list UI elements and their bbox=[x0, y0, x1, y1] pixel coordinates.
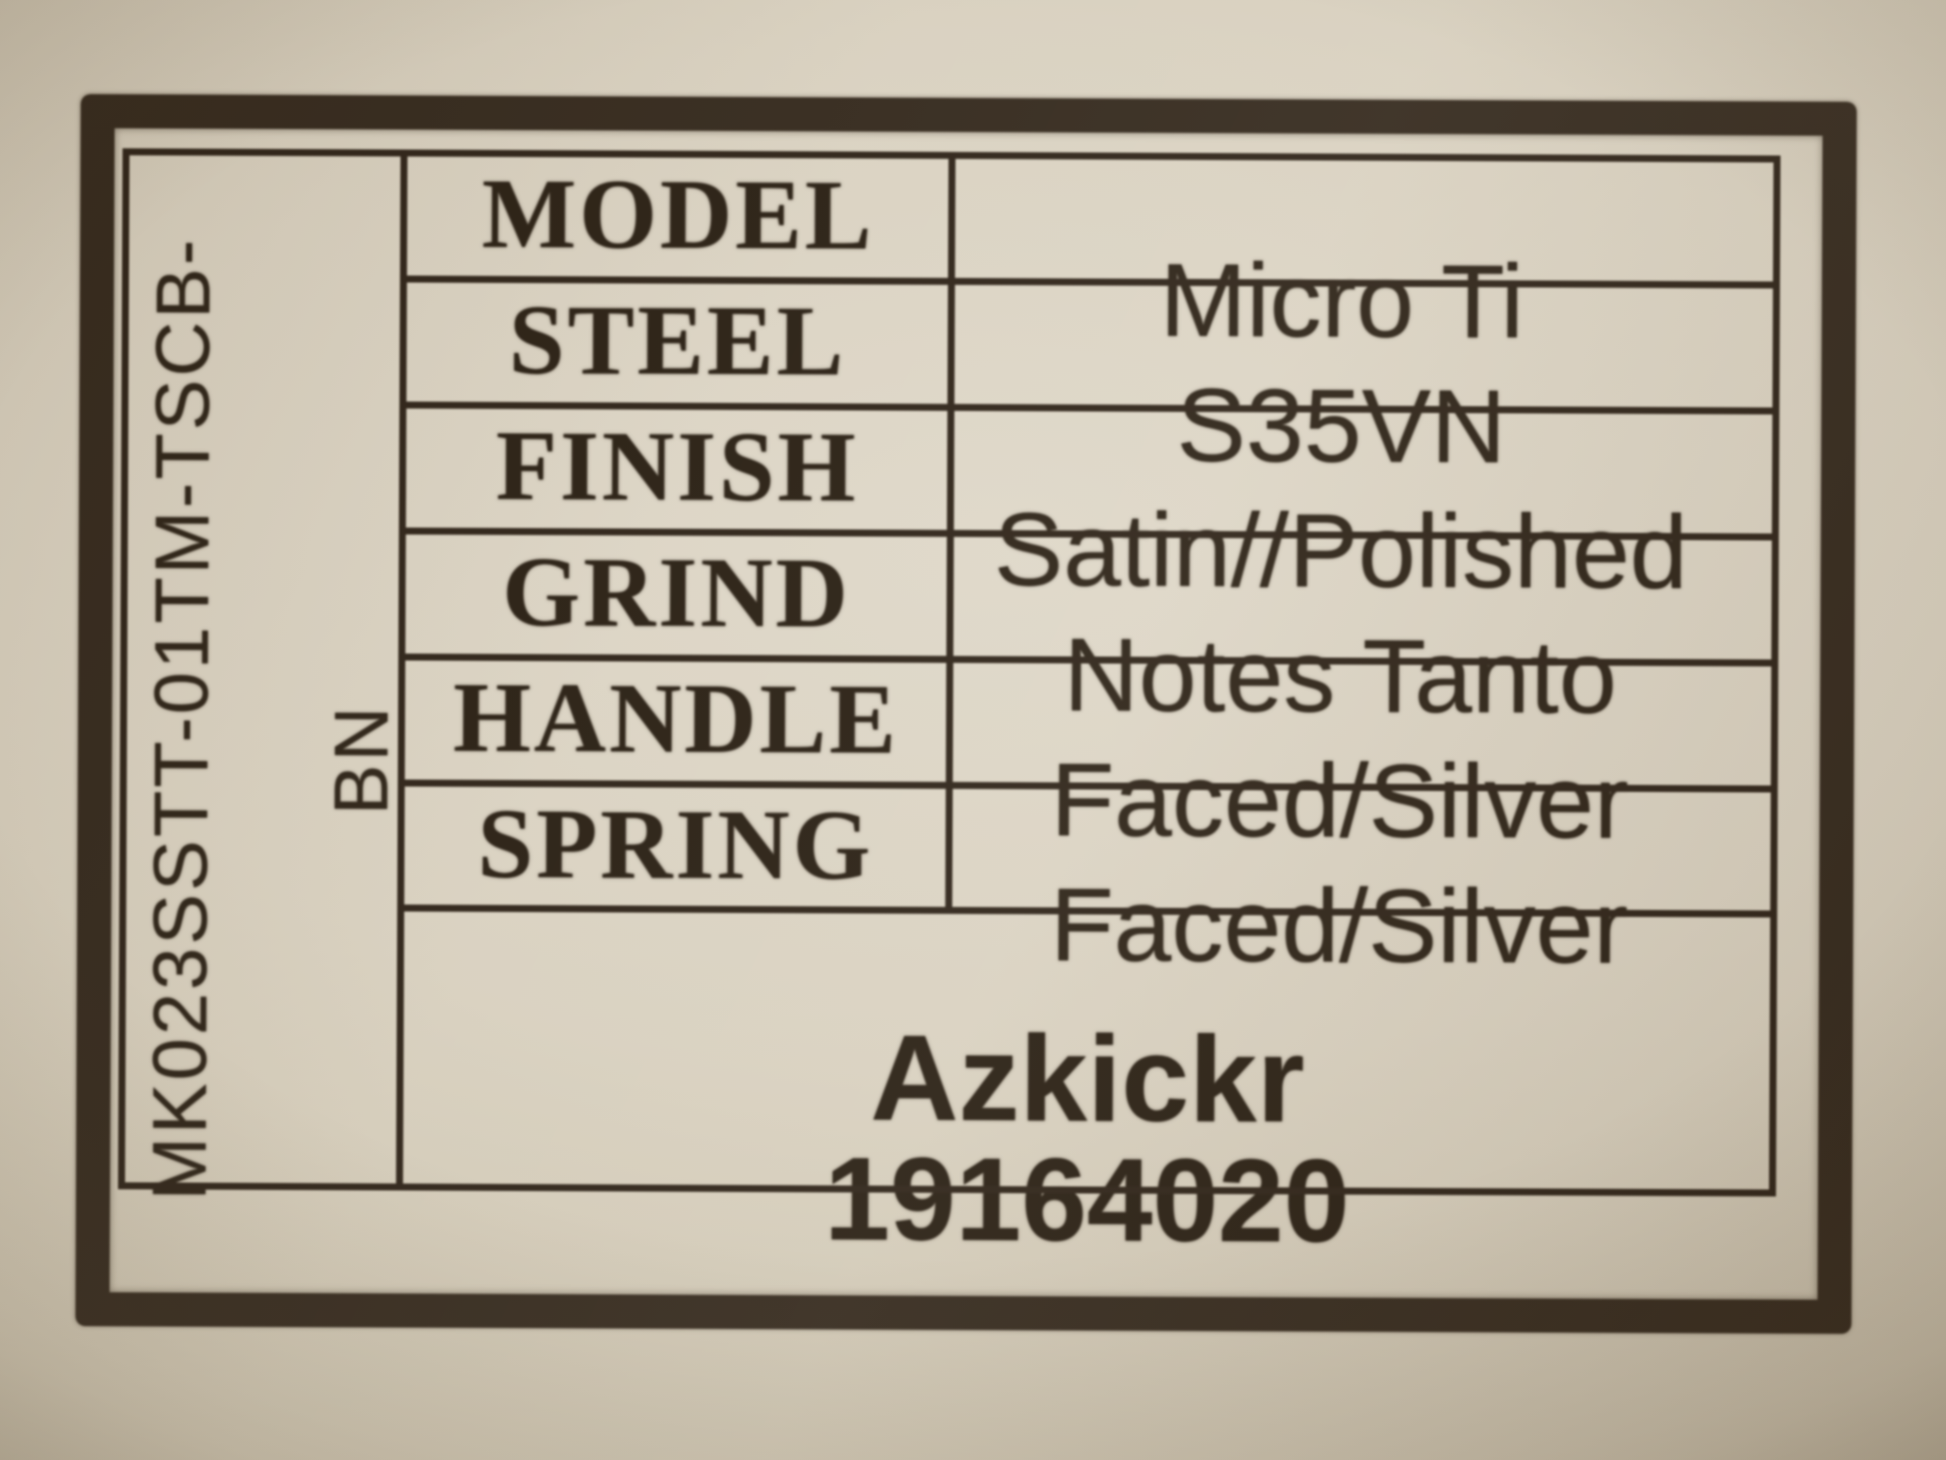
label-photo: MK023SSTT-01TM-TSCB- BN MODEL STEEL FINI… bbox=[0, 0, 1946, 1460]
printed-label: MK023SSTT-01TM-TSCB- BN MODEL STEEL FINI… bbox=[0, 0, 1946, 1460]
